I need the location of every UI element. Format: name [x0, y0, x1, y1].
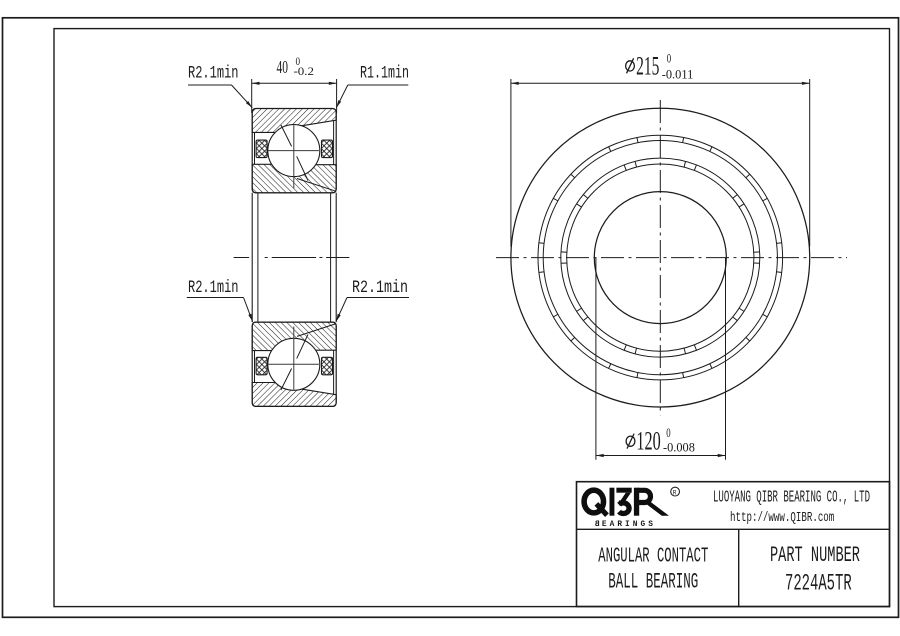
svg-text:-0.2: -0.2 — [294, 64, 315, 78]
svg-text:R2.1min: R2.1min — [352, 279, 408, 298]
svg-text:R1.1min: R1.1min — [360, 65, 409, 84]
svg-text:40: 40 — [277, 57, 289, 77]
svg-text:0: 0 — [667, 51, 671, 65]
svg-text:LUOYANG QIBR BEARING CO., LTD: LUOYANG QIBR BEARING CO., LTD — [713, 488, 870, 507]
svg-text:R2.1min: R2.1min — [188, 65, 239, 84]
svg-text:7224A5TR: 7224A5TR — [785, 570, 852, 596]
svg-text:R2.1min: R2.1min — [188, 279, 239, 298]
svg-text:ANGULAR CONTACT: ANGULAR CONTACT — [598, 545, 708, 569]
svg-text:-0.008: -0.008 — [663, 441, 695, 455]
svg-text:R: R — [673, 490, 677, 497]
svg-text:-0.011: -0.011 — [662, 68, 694, 82]
svg-text:0: 0 — [666, 426, 670, 440]
svg-text:215: 215 — [636, 52, 659, 81]
svg-text:http://www.QIBR.com: http://www.QIBR.com — [730, 510, 834, 526]
svg-text:EARINGS: EARINGS — [602, 521, 653, 529]
svg-text:PART NUMBER: PART NUMBER — [770, 543, 860, 568]
svg-text:120: 120 — [636, 426, 660, 455]
svg-text:BALL BEARING: BALL BEARING — [608, 570, 698, 595]
svg-text:B: B — [595, 521, 600, 529]
